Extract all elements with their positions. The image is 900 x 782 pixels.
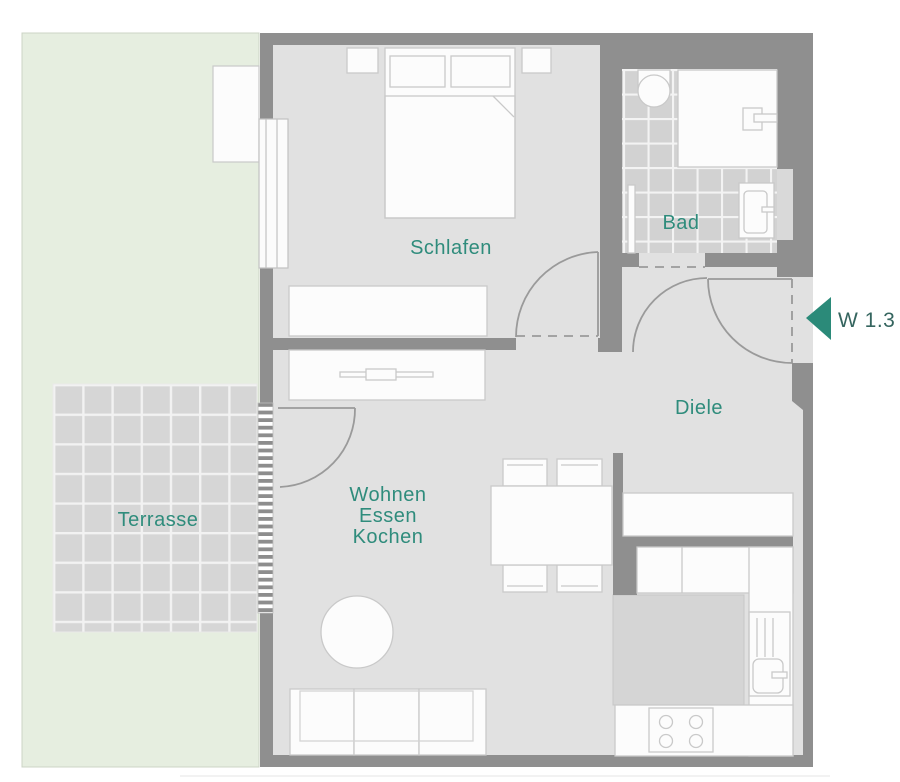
floorplan-drawing: W 1.3 Schlafen Bad Diele Wohnen Essen Ko… [0,0,900,782]
floor-strip-right [793,365,803,755]
label-bad: Bad [662,212,699,234]
pillow-left [390,56,445,87]
kitchen-sink-tap [772,672,787,678]
wall-bedroom-bath [600,45,622,352]
garden-utility-box [213,66,259,162]
bathroom-sink-tap [762,207,774,212]
label-kochen: Kochen [353,526,424,548]
nightstand-left [347,48,378,73]
label-essen: Essen [359,505,417,527]
label-wohnen: Wohnen [349,484,426,506]
sideboard [289,350,485,400]
wall-left-upper [260,45,273,119]
bath-door-leaf [628,185,635,253]
wall-left-middle [260,268,273,403]
wall-entry-jamb-top [777,267,813,277]
bath-wall-niche [777,169,793,240]
wall-bedroom-living [260,338,516,350]
bedroom-window [259,119,288,268]
wall-left-lower [260,613,273,767]
dining-chair [503,459,547,486]
nightstand-right [522,48,551,73]
wall-top [260,33,813,45]
garden-area [22,33,259,767]
sofa [290,689,486,755]
wardrobe [289,286,487,336]
dining-chair [503,565,547,592]
wall-bedroom-door-jamb [598,338,622,352]
shower-handle [754,114,777,122]
diele-counter [623,493,793,536]
terrace-door-shutter [258,403,273,613]
kitchen-island [613,595,744,705]
dining-chair [557,459,602,486]
floorplan-page: W 1.3 Schlafen Bad Diele Wohnen Essen Ko… [0,0,900,782]
wall-kitchen-vertical [613,453,623,595]
label-terrasse: Terrasse [118,509,199,531]
terrace-tiles [53,384,257,632]
stove [649,708,713,752]
unit-label: W 1.3 [838,309,895,332]
sofa-segment [419,689,486,755]
sofa-segment [354,689,419,755]
pillow-right [451,56,510,87]
toilet-bowl [638,75,670,107]
wall-bath-bottom-left [622,253,639,267]
tv-center [366,369,396,380]
bed [385,48,515,218]
wall-diele-kitchen [622,536,793,547]
entrance-marker: W 1.3 [806,297,895,340]
wall-bath-bottom-right [705,253,780,267]
dining-table [491,486,612,565]
wall-kitchen-foot [623,547,637,595]
coffee-table [321,596,393,668]
label-schlafen: Schlafen [410,237,492,259]
label-diele: Diele [675,397,723,419]
wall-bottom [260,755,813,767]
dining-chair [557,565,602,592]
stove-top [649,708,713,752]
